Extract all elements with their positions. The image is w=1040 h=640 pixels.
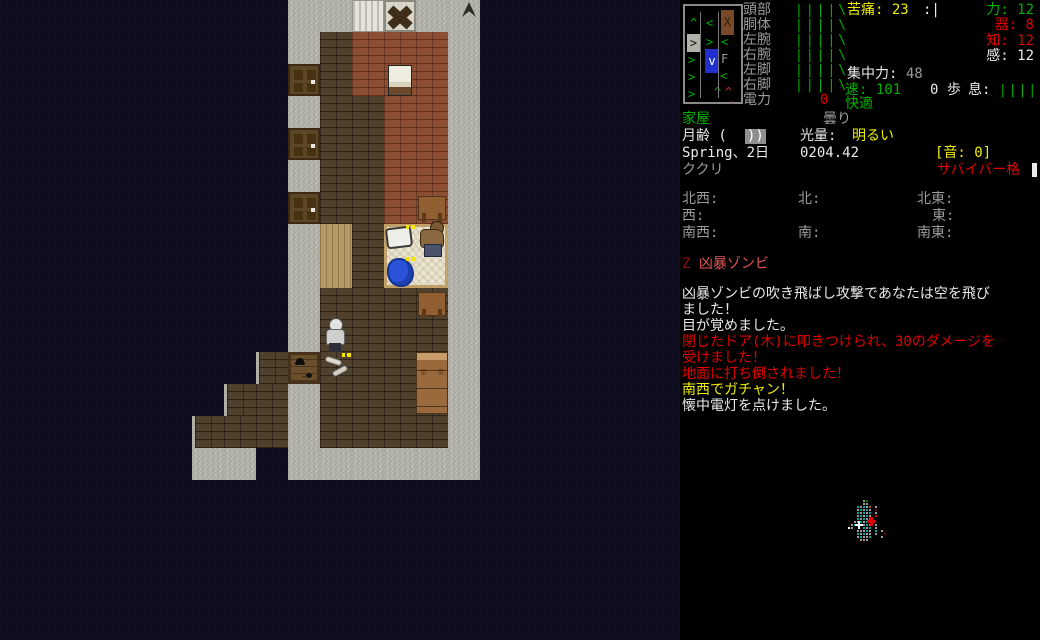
minimap-dot bbox=[851, 527, 853, 529]
compass-ne: 北東: bbox=[917, 192, 953, 207]
bodygraph-glyph: > bbox=[688, 88, 695, 100]
map-tile-stone-floor[interactable] bbox=[288, 0, 320, 32]
focus-row: 集中力: 48 bbox=[847, 67, 923, 82]
zombie-torso bbox=[420, 229, 444, 248]
map-tile-stone-floor[interactable] bbox=[288, 320, 320, 352]
map-tile-dark-brick-floor[interactable] bbox=[320, 416, 352, 448]
bodygraph-glyph: < bbox=[721, 36, 728, 48]
time-value: 0204.42 bbox=[800, 146, 859, 161]
minimap-dot bbox=[863, 533, 865, 535]
bodygraph-glyph: ^ bbox=[714, 86, 721, 98]
map-tile-red-brick-floor[interactable] bbox=[352, 64, 384, 96]
log-message: 懐中電灯を点けました。 bbox=[682, 399, 836, 414]
minimap-dot bbox=[863, 536, 865, 538]
minimap-dot bbox=[869, 533, 871, 535]
minimap-dot bbox=[866, 536, 868, 538]
minimap-dot bbox=[869, 530, 871, 532]
body-part-hp-bars: ||||\ bbox=[795, 48, 849, 63]
minimap-dot bbox=[863, 539, 865, 541]
minimap-dot bbox=[860, 536, 862, 538]
minimap-dot bbox=[866, 539, 868, 541]
log-message: 凶暴ゾンビの吹き飛ばし攻撃であなたは空を飛び bbox=[682, 287, 990, 302]
map-tile-stone-floor[interactable] bbox=[288, 224, 320, 256]
map-tile-stone-floor[interactable] bbox=[448, 352, 480, 384]
map-tile-dark-brick-floor[interactable] bbox=[384, 384, 416, 416]
map-tile-wood-floor[interactable] bbox=[320, 256, 352, 288]
bodygraph-glyph: > bbox=[687, 34, 700, 52]
map-tile-dark-brick-step[interactable] bbox=[224, 384, 256, 416]
map-tile-dark-brick-floor[interactable] bbox=[352, 256, 384, 288]
map-tile-wooden-door[interactable] bbox=[288, 192, 320, 224]
log-message: 受けました！ bbox=[682, 351, 766, 366]
compass-n: 北: bbox=[798, 192, 820, 207]
minimap-dot bbox=[863, 521, 865, 523]
minimap-dot bbox=[848, 527, 850, 529]
focus-value: 48 bbox=[906, 66, 923, 82]
log-message: 地面に打ち倒されました！ bbox=[682, 367, 850, 382]
minimap-dot bbox=[860, 533, 862, 535]
map-tile-wood-floor[interactable] bbox=[320, 224, 352, 256]
minimap-dot bbox=[869, 512, 871, 514]
map-tile-dark-brick-floor[interactable] bbox=[320, 192, 352, 224]
martial-style: サバイバー格 bbox=[937, 163, 1020, 178]
minimap-dot bbox=[860, 515, 862, 517]
body-part-row: 胴体||||\ bbox=[743, 18, 1033, 33]
minimap-dot bbox=[857, 518, 859, 520]
date-value: Spring、2日 bbox=[682, 146, 769, 161]
moon-phase: )) bbox=[745, 129, 766, 144]
minimap-dot bbox=[857, 506, 859, 508]
minimap-dot bbox=[863, 506, 865, 508]
minimap-dot bbox=[863, 503, 865, 505]
minimap-dot bbox=[884, 533, 886, 535]
log-message: 目が覚めました。 bbox=[682, 319, 794, 334]
blanket[interactable] bbox=[387, 258, 414, 287]
bodygraph-glyph: > bbox=[706, 36, 713, 48]
minimap-dot bbox=[863, 512, 865, 514]
map-tile-stone-floor[interactable] bbox=[288, 384, 320, 416]
minimap-dot bbox=[875, 527, 877, 529]
pain-value: 23 bbox=[892, 2, 909, 18]
minimap-enemy-marker bbox=[867, 517, 876, 526]
light-label: 光量: bbox=[800, 129, 836, 144]
weather-status: 曇り bbox=[823, 112, 851, 127]
bodygraph-glyph: > bbox=[688, 54, 695, 66]
chair[interactable] bbox=[388, 65, 412, 96]
map-tile-stone-floor[interactable] bbox=[288, 160, 320, 192]
stat-dex: 器: 8 bbox=[995, 18, 1034, 33]
log-message: 南西でガチャン！ bbox=[682, 383, 794, 398]
map-tile-dark-brick-floor[interactable] bbox=[320, 288, 352, 320]
stat-str: 力: 12 bbox=[986, 3, 1034, 18]
bodygraph-widget[interactable]: ^<X>><>vF><>^^. bbox=[683, 4, 743, 104]
map-tile-dark-brick-floor[interactable] bbox=[352, 160, 384, 192]
map-tile-red-brick-floor[interactable] bbox=[384, 128, 416, 160]
map-tile-stone-floor[interactable] bbox=[448, 64, 480, 96]
bodygraph-glyph: < bbox=[706, 17, 713, 29]
map-tile-stone-floor[interactable] bbox=[448, 192, 480, 224]
map-tile-dark-brick-floor[interactable] bbox=[352, 128, 384, 160]
minimap-dot bbox=[851, 524, 853, 526]
map-tile-stone-floor[interactable] bbox=[384, 448, 416, 480]
minimap-dot bbox=[857, 533, 859, 535]
table[interactable] bbox=[418, 292, 446, 316]
player-torso bbox=[326, 329, 345, 345]
log-message: 閉じたドア(木)に叩きつけられ、30のダメージを bbox=[682, 335, 995, 350]
enemy-symbol: Z bbox=[682, 256, 690, 272]
minimap-dot bbox=[863, 515, 865, 517]
map-tile-stone-floor[interactable] bbox=[288, 448, 320, 480]
overmap-minimap[interactable] bbox=[840, 492, 900, 552]
breath-label: 息: bbox=[968, 82, 990, 98]
map-tile-smashed-window[interactable] bbox=[384, 0, 416, 32]
map-tile-stone-floor[interactable] bbox=[288, 256, 320, 288]
pain-label: 苦痛: bbox=[847, 2, 883, 18]
map-tile-wooden-door[interactable] bbox=[288, 64, 320, 96]
player-character[interactable] bbox=[320, 320, 352, 352]
body-part-label: 胴体 bbox=[743, 17, 771, 33]
map-tile-red-brick-floor[interactable] bbox=[384, 160, 416, 192]
minimap-player-marker bbox=[855, 521, 863, 529]
enemy-list-row: Z 凶暴ゾンビ bbox=[682, 257, 769, 272]
minimap-dot bbox=[875, 530, 877, 532]
minimap-dot bbox=[863, 518, 865, 520]
map-tile-red-brick-floor[interactable] bbox=[384, 96, 416, 128]
map-tile-red-brick-floor[interactable] bbox=[352, 32, 384, 64]
minimap-dot bbox=[866, 503, 868, 505]
map-tile-red-brick-floor[interactable] bbox=[384, 32, 416, 64]
minimap-dot bbox=[857, 536, 859, 538]
minimap-dot bbox=[875, 506, 877, 508]
map-tile-dark-brick-step[interactable] bbox=[192, 416, 224, 448]
map-tile-wooden-door[interactable] bbox=[288, 128, 320, 160]
body-part-hp-bars: ||||\ bbox=[795, 33, 849, 48]
morale-indicator: :| bbox=[923, 3, 940, 18]
moves-value: 0 歩 bbox=[930, 83, 961, 98]
item-marker[interactable] bbox=[342, 353, 351, 357]
map-tile-stone-floor[interactable] bbox=[448, 32, 480, 64]
log-message: ました！ bbox=[682, 303, 738, 318]
compass-s: 南: bbox=[798, 226, 820, 241]
compass-e: 東: bbox=[932, 209, 954, 224]
bodygraph-glyph: F bbox=[721, 53, 728, 65]
minimap-dot bbox=[875, 512, 877, 514]
map-tile-dark-brick-floor[interactable] bbox=[352, 352, 384, 384]
minimap-dot bbox=[869, 509, 871, 511]
map-tile-dark-brick-floor[interactable] bbox=[384, 352, 416, 384]
focus-label: 集中力: bbox=[847, 66, 897, 82]
minimap-dot bbox=[875, 509, 877, 511]
map-tile-dark-brick-floor[interactable] bbox=[320, 96, 352, 128]
map-tile-red-brick-floor[interactable] bbox=[384, 192, 416, 224]
map-tile-stone-floor[interactable] bbox=[224, 448, 256, 480]
map-pane[interactable] bbox=[0, 0, 680, 640]
power-label: 電力 bbox=[743, 93, 771, 108]
map-tile-stone-floor[interactable] bbox=[448, 416, 480, 448]
minimap-dot bbox=[866, 527, 868, 529]
pillow[interactable] bbox=[385, 225, 413, 249]
compass-nw: 北西: bbox=[682, 192, 718, 207]
dresser[interactable] bbox=[416, 352, 448, 414]
body-part-hp-bars: ||||\ bbox=[795, 78, 849, 93]
map-tile-stone-floor[interactable] bbox=[320, 448, 352, 480]
minimap-dot bbox=[857, 530, 859, 532]
bodygraph-glyph: . bbox=[728, 93, 735, 105]
minimap-dot bbox=[881, 536, 883, 538]
map-tile-stone-floor[interactable] bbox=[288, 288, 320, 320]
style-cursor bbox=[1032, 163, 1037, 177]
minimap-dot bbox=[860, 530, 862, 532]
map-tile-dark-brick-floor[interactable] bbox=[384, 416, 416, 448]
map-tile-dark-brick-floor[interactable] bbox=[352, 192, 384, 224]
minimap-dot bbox=[866, 500, 868, 502]
map-tile-stone-floor[interactable] bbox=[448, 320, 480, 352]
minimap-dot bbox=[869, 536, 871, 538]
sound-indicator: [音: 0] bbox=[935, 146, 991, 161]
item-marker[interactable] bbox=[406, 225, 415, 229]
map-tile-dark-brick-floor[interactable] bbox=[416, 320, 448, 352]
breath-bars: ||||| bbox=[999, 83, 1040, 98]
map-tile-dark-brick-floor[interactable] bbox=[384, 320, 416, 352]
map-tile-stone-floor[interactable] bbox=[448, 384, 480, 416]
minimap-dot bbox=[863, 524, 865, 526]
map-tile-stone-floor[interactable] bbox=[288, 416, 320, 448]
minimap-dot bbox=[863, 509, 865, 511]
map-tile-stone-floor[interactable] bbox=[448, 96, 480, 128]
minimap-dot bbox=[860, 509, 862, 511]
map-tile-dark-brick-floor[interactable] bbox=[320, 64, 352, 96]
light-value: 明るい bbox=[852, 129, 894, 144]
body-part-label: 頭部 bbox=[743, 2, 771, 18]
map-tile-dark-brick-floor[interactable] bbox=[320, 128, 352, 160]
bodygraph-glyph: ^ bbox=[690, 17, 697, 29]
map-tile-red-brick-floor[interactable] bbox=[416, 160, 448, 192]
moon-phase-glyph: )) bbox=[745, 129, 766, 144]
sidebar: ^<X>><>vF><>^^. 頭部||||\胴体||||\左腕||||\右腕|… bbox=[680, 0, 1040, 640]
map-tile-dark-brick-step[interactable] bbox=[256, 352, 288, 384]
map-tile-stone-floor[interactable] bbox=[448, 448, 480, 480]
location-name: 家屋 bbox=[682, 112, 710, 127]
minimap-dot bbox=[857, 512, 859, 514]
bodygraph-glyph: < bbox=[720, 70, 727, 82]
bodygraph-glyph: > bbox=[688, 71, 695, 83]
minimap-dot bbox=[863, 527, 865, 529]
map-tile-red-brick-floor[interactable] bbox=[416, 96, 448, 128]
power-value: 0 bbox=[820, 93, 828, 108]
map-tile-stone-floor[interactable] bbox=[288, 32, 320, 64]
speed-value: 101 bbox=[876, 82, 901, 98]
map-tile-dark-brick-floor[interactable] bbox=[384, 288, 416, 320]
body-part-label: 右脚 bbox=[743, 77, 771, 93]
map-tile-dark-brick-floor[interactable] bbox=[224, 416, 256, 448]
minimap-dot bbox=[857, 515, 859, 517]
map-tile-stone-floor[interactable] bbox=[448, 128, 480, 160]
pain-indicator: 苦痛: 23 bbox=[847, 3, 909, 18]
weapon-name: ククリ bbox=[682, 163, 723, 178]
spiders[interactable] bbox=[288, 352, 320, 384]
map-tile-dark-brick-floor[interactable] bbox=[256, 416, 288, 448]
map-tile-red-brick-floor[interactable] bbox=[416, 128, 448, 160]
stat-int: 知: 12 bbox=[986, 34, 1034, 49]
compass-w: 西: bbox=[682, 209, 704, 224]
compass-sw: 南西: bbox=[682, 226, 718, 241]
map-tile-stone-floor[interactable] bbox=[448, 256, 480, 288]
map-tile-stone-floor[interactable] bbox=[448, 160, 480, 192]
body-part-label: 左脚 bbox=[743, 62, 771, 78]
body-part-hp-bars: ||||\ bbox=[795, 63, 849, 78]
minimap-dot bbox=[866, 530, 868, 532]
stat-per: 感: 12 bbox=[986, 49, 1034, 64]
body-part-label: 右腕 bbox=[743, 47, 771, 63]
body-part-label: 左腕 bbox=[743, 32, 771, 48]
minimap-dot bbox=[860, 512, 862, 514]
map-tile-dark-brick-floor[interactable] bbox=[352, 384, 384, 416]
map-tile-dark-brick-floor[interactable] bbox=[320, 32, 352, 64]
minimap-dot bbox=[869, 506, 871, 508]
map-tile-dark-brick-floor[interactable] bbox=[352, 320, 384, 352]
map-tile-dark-brick-floor[interactable] bbox=[352, 288, 384, 320]
map-tile-stone-floor[interactable] bbox=[352, 448, 384, 480]
map-tile-dark-brick-floor[interactable] bbox=[320, 384, 352, 416]
map-tile-red-brick-floor[interactable] bbox=[416, 64, 448, 96]
minimap-dot bbox=[860, 506, 862, 508]
body-part-hp-bars: ||||\ bbox=[795, 3, 849, 18]
map-tile-stone-floor[interactable] bbox=[448, 224, 480, 256]
bodygraph-glyph: v bbox=[705, 49, 719, 73]
minimap-dot bbox=[869, 527, 871, 529]
minimap-dot bbox=[866, 506, 868, 508]
minimap-dot bbox=[860, 539, 862, 541]
minimap-dot bbox=[875, 533, 877, 535]
zombie-brute[interactable] bbox=[416, 224, 448, 256]
minimap-dot bbox=[857, 509, 859, 511]
map-tile-curtained-window[interactable] bbox=[352, 0, 384, 32]
game-screen: ^<X>><>vF><>^^. 頭部||||\胴体||||\左腕||||\右腕|… bbox=[0, 0, 1040, 640]
item-marker[interactable] bbox=[406, 257, 415, 261]
map-tile-dark-brick-floor[interactable] bbox=[416, 416, 448, 448]
map-tile-dark-brick-floor[interactable] bbox=[352, 224, 384, 256]
map-tile-stone-floor[interactable] bbox=[416, 0, 448, 32]
table[interactable] bbox=[418, 196, 446, 220]
minimap-dot bbox=[866, 512, 868, 514]
bodygraph-glyph: X bbox=[721, 10, 734, 35]
minimap-dot bbox=[860, 518, 862, 520]
map-tile-stone-floor[interactable] bbox=[288, 96, 320, 128]
map-tile-dark-brick-floor[interactable] bbox=[352, 416, 384, 448]
map-tile-dark-brick-floor[interactable] bbox=[352, 96, 384, 128]
map-tile-stone-floor[interactable] bbox=[448, 288, 480, 320]
map-tile-stone-floor[interactable] bbox=[320, 0, 352, 32]
map-tile-dark-brick-floor[interactable] bbox=[256, 384, 288, 416]
map-tile-red-brick-floor[interactable] bbox=[416, 32, 448, 64]
minimap-dot bbox=[866, 509, 868, 511]
minimap-dot bbox=[863, 500, 865, 502]
minimap-dot bbox=[866, 533, 868, 535]
map-tile-stone-floor[interactable] bbox=[416, 448, 448, 480]
body-part-hp-bars: ||||\ bbox=[795, 18, 849, 33]
minimap-dot bbox=[881, 530, 883, 532]
map-tile-stone-floor[interactable] bbox=[192, 448, 224, 480]
minimap-dot bbox=[863, 530, 865, 532]
comfort-status: 快適 bbox=[845, 97, 873, 112]
enemy-name: 凶暴ゾンビ bbox=[699, 256, 769, 272]
moon-label: 月齢 ( bbox=[682, 129, 727, 144]
map-tile-dark-brick-floor[interactable] bbox=[320, 160, 352, 192]
breath-row: 息: ||||| bbox=[968, 83, 1040, 98]
compass-se: 南東: bbox=[917, 226, 953, 241]
